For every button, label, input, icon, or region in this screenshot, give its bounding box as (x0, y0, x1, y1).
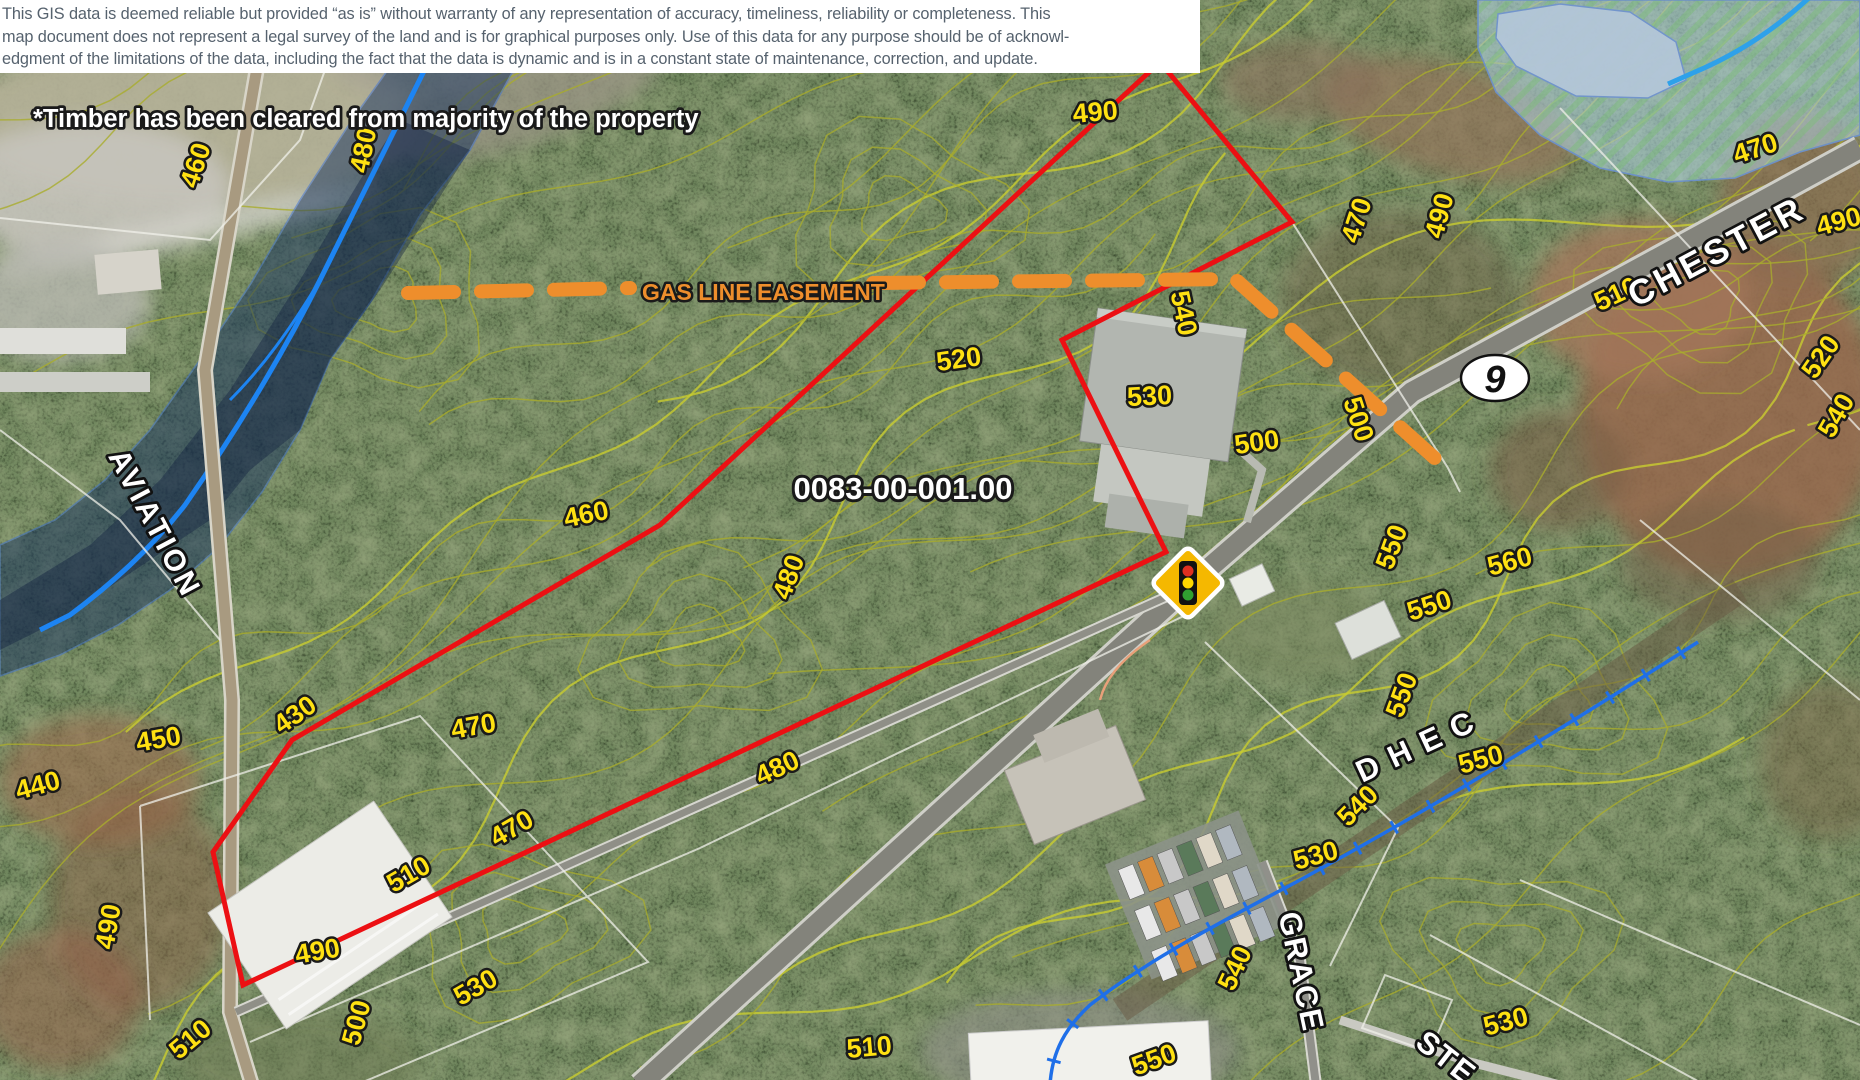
gis-map-viewport: GAS LINE EASEMENT 9 46048049047047049049… (0, 0, 1860, 1080)
highway-9-shield: 9 (1461, 355, 1529, 401)
contour-label-510: 510 (845, 1030, 893, 1064)
disclaimer-line-2: map document does not represent a legal … (2, 26, 1194, 49)
timber-note: *Timber has been cleared from majority o… (33, 105, 699, 133)
disclaimer-line-1: This GIS data is deemed reliable but pro… (2, 3, 1194, 26)
parcel-id-label: 0083-00-001.00 (794, 471, 1013, 506)
aerial-map-canvas: GAS LINE EASEMENT 9 46048049047047049049… (0, 0, 1860, 1080)
disclaimer-line-3: edgment of the limitations of the data, … (2, 48, 1194, 71)
airport-hangar (0, 328, 126, 354)
contour-label-500: 500 (1232, 424, 1281, 460)
highway-9-shield-number: 9 (1484, 359, 1505, 401)
contour-label-490: 490 (1071, 95, 1119, 129)
gas-line-easement-label: GAS LINE EASEMENT (642, 279, 885, 305)
contour-label-530: 530 (1126, 380, 1173, 412)
contour-label-520: 520 (934, 341, 983, 377)
gis-disclaimer-box: This GIS data is deemed reliable but pro… (0, 0, 1200, 73)
